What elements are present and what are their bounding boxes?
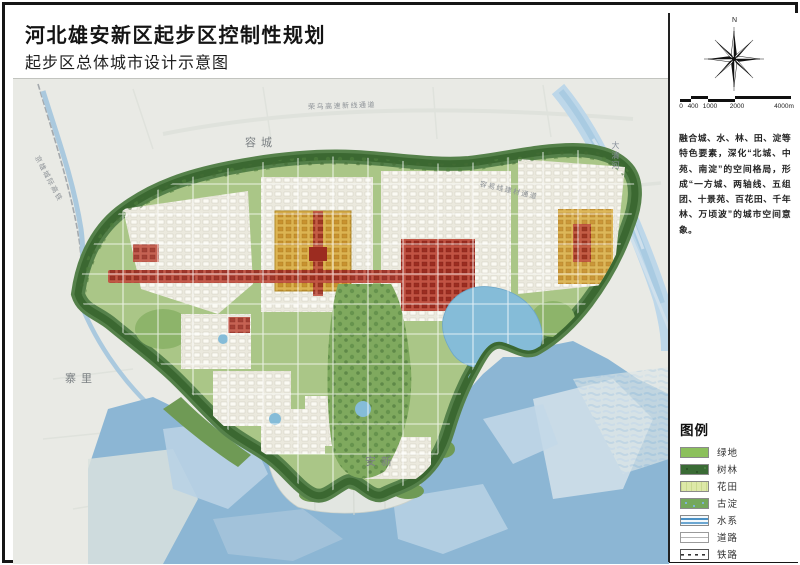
plan-sheet: 河北雄安新区起步区控制性规划 起步区总体城市设计示意图 [0,0,800,565]
page-subtitle: 起步区总体城市设计示意图 [25,49,229,73]
legend-title: 图例 [680,419,792,439]
ancient-marsh-swatch-icon [680,498,709,509]
label-zhaili: 寨里 [65,370,97,386]
legend: 图例 绿地 树林 花田 古淀 [680,419,792,565]
title-block: 河北雄安新区起步区控制性规划 起步区总体城市设计示意图 [13,13,665,77]
greenspace-swatch-icon [680,447,709,458]
plan-description: 融合城、水、林、田、淀等特色要素，深化“北城、中苑、南淀”的空间格局，形成“一方… [679,131,791,238]
map-graphic [13,79,669,564]
scale-tick-2000: 2000 [730,103,744,110]
railway-swatch-icon [680,549,709,560]
scale-tick-400: 400 [688,103,699,110]
label-daqinghe: 大清河 [610,141,621,171]
forest-swatch-icon [680,464,709,475]
flowerfield-swatch-icon [680,481,709,492]
legend-item-railway: 铁路 [680,548,792,560]
scale-tick-4000: 4000m [774,103,794,110]
scale-bar: 0 400 1000 2000 4000m [680,95,792,113]
compass-north-label: N [670,17,799,24]
compass-rose-icon [703,25,765,93]
legend-item-water: 水系 [680,514,792,526]
legend-item-forest: 树林 [680,463,792,475]
label-anxin: 安新 [365,453,397,469]
plan-map: 容城 寨里 安新 大清河 京雄城际高铁 荣乌高速新线通道 容易线建材通道 [13,78,669,564]
road-swatch-icon [680,532,709,543]
water-swatch-icon [680,515,709,526]
label-rongcheng: 容城 [245,134,277,150]
legend-item-greenspace: 绿地 [680,446,792,458]
red-axis-eastwest [108,270,448,283]
legend-item-ancient-marsh: 古淀 [680,497,792,509]
scale-tick-0: 0 [679,103,683,110]
legend-item-flowerfield: 花田 [680,480,792,492]
legend-item-road: 道路 [680,531,792,543]
page-title: 河北雄安新区起步区控制性规划 [25,19,326,48]
scale-tick-1000: 1000 [703,103,717,110]
sidebar: N [668,13,799,562]
outer-frame: 河北雄安新区起步区控制性规划 起步区总体城市设计示意图 [2,2,798,563]
